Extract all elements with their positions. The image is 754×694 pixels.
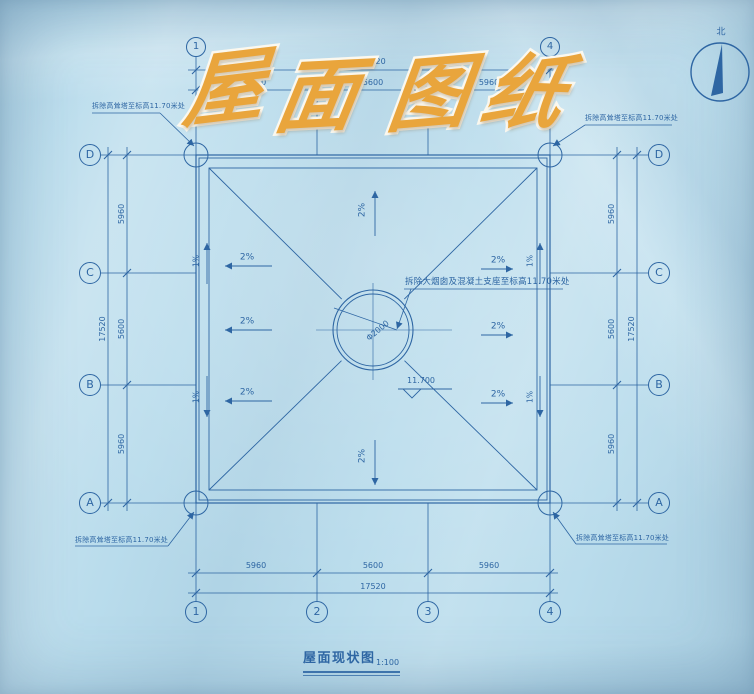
elevation-symbol: [398, 389, 452, 398]
drawing-title: 屋面现状图: [303, 652, 376, 665]
dim-left-seg2: 5600: [118, 319, 126, 339]
north-label: 北: [716, 29, 725, 38]
dim-right-seg3: 5960: [608, 434, 616, 454]
dim-right-seg2: 5600: [608, 319, 616, 339]
footer-rule: [303, 672, 400, 676]
note-corner-topright: 拆除高耸塔至标高11.70米处: [585, 115, 678, 122]
dim-left-seg1: 5960: [118, 204, 126, 224]
grid-bubble-rowD-right: D: [648, 144, 670, 166]
edge-slope-left-bottom: 1%: [192, 391, 200, 403]
note-corner-bottomright: 拆除高耸塔至标高11.70米处: [576, 535, 669, 542]
edge-slope-right-top: 1%: [526, 255, 534, 267]
north-compass: [691, 43, 749, 101]
slope-label-left-3: 2%: [240, 389, 254, 398]
dim-top-total: 17520: [360, 58, 385, 66]
grid-bubble-rowB-right: B: [648, 374, 670, 396]
note-corner-topleft: 拆除高耸塔至标高11.70米处: [92, 103, 185, 110]
dim-right-total: 17520: [628, 316, 636, 341]
elevation-value: 11.700: [407, 377, 435, 385]
dim-right-seg1: 5960: [608, 204, 616, 224]
slope-label-right-1: 2%: [491, 257, 505, 266]
dim-top-seg2: 5600: [363, 79, 383, 87]
slope-label-bottom: 2%: [359, 449, 368, 463]
grid-bubble-col4-bottom: 4: [539, 601, 561, 623]
grid-bubble-rowB-left: B: [79, 374, 101, 396]
dim-left-seg3: 5960: [118, 434, 126, 454]
grid-bubble-col1-top: 1: [186, 37, 206, 57]
grid-bubble-col1-bottom: 1: [185, 601, 207, 623]
slope-label-left-1: 2%: [240, 254, 254, 263]
dim-bottom-total: 17520: [360, 583, 385, 591]
slope-label-right-2: 2%: [491, 323, 505, 332]
grid-bubble-rowC-right: C: [648, 262, 670, 284]
grid-bubble-rowA-left: A: [79, 492, 101, 514]
north-needle-icon: [711, 44, 723, 96]
grid-bubble-col4-top: 4: [540, 37, 560, 57]
slope-label-right-3: 2%: [491, 391, 505, 400]
grid-bubble-rowD-left: D: [79, 144, 101, 166]
grid-bubble-col3-bottom: 3: [417, 601, 439, 623]
grid-bubble-col2-bottom: 2: [306, 601, 328, 623]
dim-bottom-seg1: 5960: [246, 562, 266, 570]
edge-slope-right-bottom: 1%: [526, 391, 534, 403]
note-corner-bottomleft: 拆除高耸塔至标高11.70米处: [75, 537, 168, 544]
slope-label-top: 2%: [359, 203, 368, 217]
note-center-chimney: 拆除大烟囱及混凝土支座至标高11.70米处: [405, 278, 570, 287]
grid-bubble-rowA-right: A: [648, 492, 670, 514]
dim-bottom-seg2: 5600: [363, 562, 383, 570]
dim-top-seg1: 5960: [246, 79, 266, 87]
dim-top-seg3: 5960: [479, 79, 499, 87]
blueprint-sheet: 1 4 1 2 3 4 D C B A D C B A 17520 5960 5…: [0, 0, 754, 694]
dim-bottom-seg3: 5960: [479, 562, 499, 570]
edge-slope-left-top: 1%: [192, 255, 200, 267]
dim-left-total: 17520: [99, 316, 107, 341]
grid-bubble-rowC-left: C: [79, 262, 101, 284]
drawing-scale: 1:100: [376, 659, 399, 667]
slope-label-left-2: 2%: [240, 318, 254, 327]
